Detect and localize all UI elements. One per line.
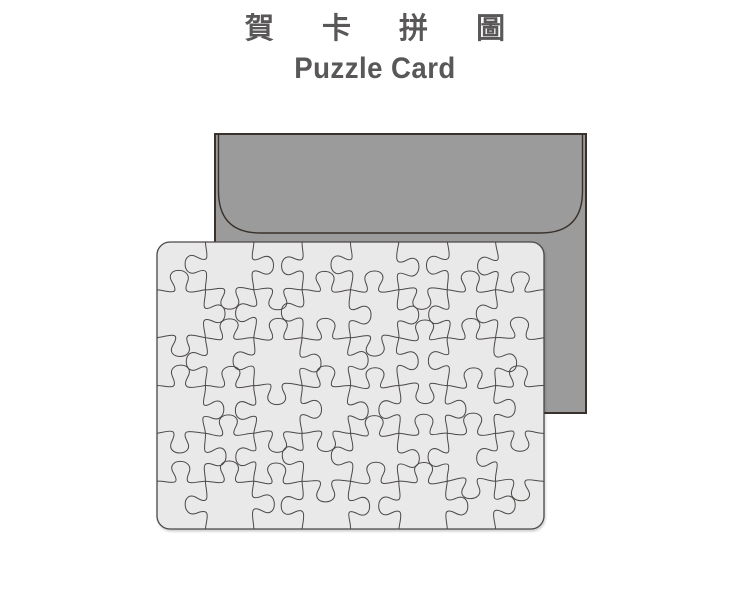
puzzle-card-graphic xyxy=(157,242,544,529)
poster: 賀 卡 拼 圖 Puzzle Card xyxy=(0,0,750,616)
puzzle-card-illustration xyxy=(0,0,750,616)
